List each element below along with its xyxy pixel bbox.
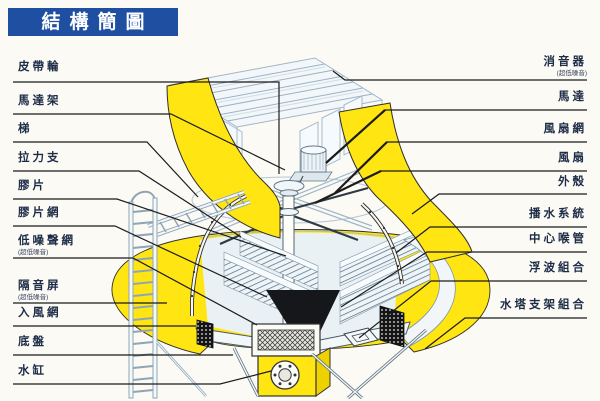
page-title: 結構簡圖 bbox=[8, 8, 178, 36]
label-fan: 風扇 bbox=[558, 153, 587, 165]
label-low-noise-net-note: (超低噪音) bbox=[18, 250, 76, 257]
label-tension-stay: 拉力支 bbox=[18, 153, 62, 165]
label-air-inlet-net: 入風網 bbox=[18, 308, 62, 320]
label-silencer-note: (超低噪音) bbox=[544, 71, 588, 78]
label-fill-net: 膠片網 bbox=[18, 208, 62, 220]
label-water-distribution: 播水系統 bbox=[529, 209, 587, 221]
label-center-pipe: 中心喉管 bbox=[529, 234, 587, 246]
label-ladder: 梯 bbox=[18, 124, 33, 136]
structural-diagram-page: 結構簡圖 bbox=[0, 0, 600, 401]
label-belt-pulley: 皮帶輪 bbox=[18, 62, 62, 74]
label-silencer: 消音器(超低噪音) bbox=[544, 57, 588, 77]
motor-and-fan-hub bbox=[274, 146, 332, 196]
label-low-noise-net: 低噪聲網(超低噪音) bbox=[18, 236, 76, 256]
label-sound-screen-note: (超低噪音) bbox=[18, 295, 62, 302]
label-motor-frame: 馬達架 bbox=[18, 96, 62, 108]
label-water-tank: 水缸 bbox=[18, 366, 47, 378]
label-motor: 馬達 bbox=[558, 92, 587, 104]
label-fill-sheet: 膠片 bbox=[18, 181, 47, 193]
label-support-frame: 水塔支架組合 bbox=[500, 300, 587, 312]
label-basin: 底盤 bbox=[18, 337, 47, 349]
cooling-tower-cutaway-illustration bbox=[0, 0, 600, 401]
label-sound-screen: 隔音屏(超低噪音) bbox=[18, 281, 62, 301]
label-float-assembly: 浮波組合 bbox=[529, 263, 587, 275]
label-fan-net: 風扇網 bbox=[544, 124, 588, 136]
label-casing: 外殼 bbox=[558, 177, 587, 189]
